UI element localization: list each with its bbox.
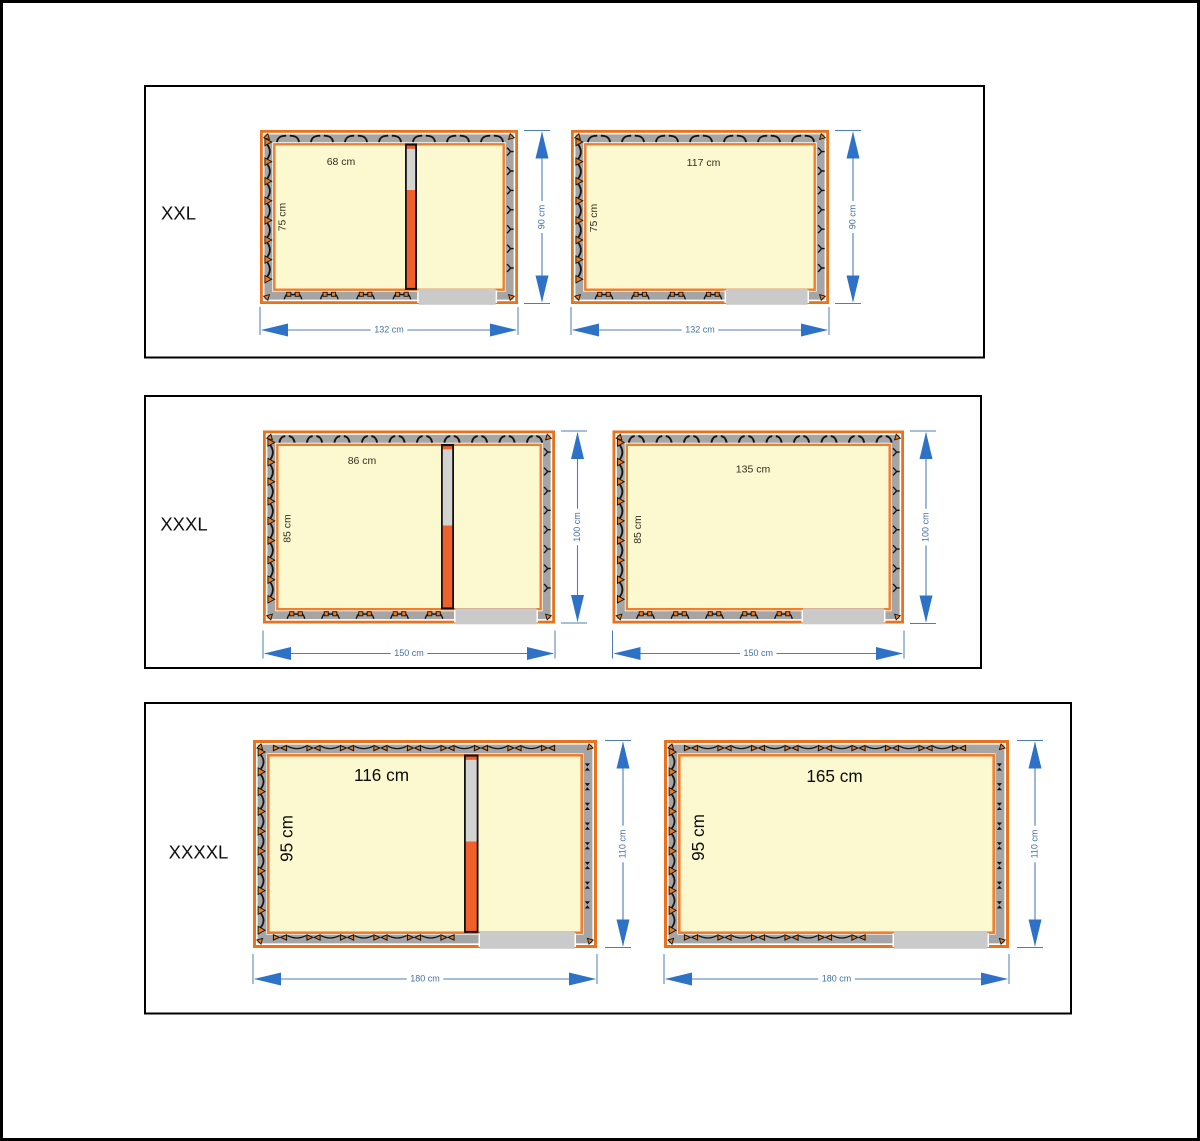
svg-text:85 cm: 85 cm	[282, 514, 294, 543]
svg-text:180 cm: 180 cm	[410, 974, 440, 984]
svg-text:165 cm: 165 cm	[806, 766, 862, 786]
svg-text:85 cm: 85 cm	[632, 515, 644, 544]
svg-text:180 cm: 180 cm	[822, 974, 852, 984]
svg-text:95 cm: 95 cm	[688, 814, 708, 861]
svg-text:86 cm: 86 cm	[348, 455, 377, 467]
svg-text:75 cm: 75 cm	[276, 202, 288, 231]
svg-text:132 cm: 132 cm	[685, 325, 715, 335]
svg-text:100 cm: 100 cm	[921, 512, 931, 542]
svg-text:110 cm: 110 cm	[618, 830, 628, 859]
svg-text:XXL: XXL	[161, 203, 196, 224]
svg-text:135 cm: 135 cm	[736, 464, 771, 476]
svg-text:75 cm: 75 cm	[588, 203, 600, 232]
svg-text:150 cm: 150 cm	[394, 648, 424, 658]
svg-text:117 cm: 117 cm	[687, 157, 721, 169]
svg-text:68 cm: 68 cm	[327, 156, 356, 168]
svg-text:95 cm: 95 cm	[277, 815, 297, 862]
svg-text:150 cm: 150 cm	[743, 648, 773, 658]
svg-text:90 cm: 90 cm	[848, 205, 858, 230]
svg-text:132 cm: 132 cm	[374, 325, 404, 335]
svg-text:110 cm: 110 cm	[1030, 830, 1040, 859]
svg-text:XXXXL: XXXXL	[169, 842, 229, 863]
svg-text:90 cm: 90 cm	[537, 205, 547, 230]
svg-text:XXXL: XXXL	[160, 514, 207, 535]
svg-text:100 cm: 100 cm	[572, 512, 582, 542]
svg-text:116 cm: 116 cm	[354, 765, 409, 785]
